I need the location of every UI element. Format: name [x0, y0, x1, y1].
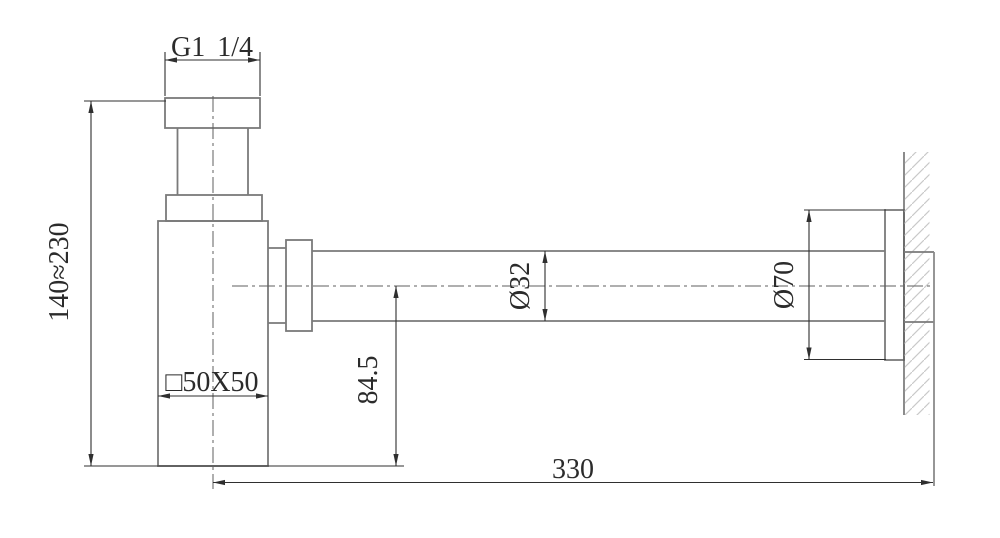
dim-height-range: 140≈230 — [44, 101, 166, 466]
arrowhead-up — [393, 286, 398, 298]
wall-flange — [885, 210, 904, 360]
wall-hatching — [905, 152, 930, 415]
centerlines — [213, 96, 930, 489]
arrowhead-right — [921, 480, 933, 485]
dim-thread-size: G1 1/4 — [165, 32, 260, 96]
arrowhead-up — [542, 251, 547, 263]
dim-label-thread-size: G1 1/4 — [171, 32, 253, 63]
dim-label-pipe-diameter: Ø32 — [505, 262, 536, 310]
dim-body-section: □50X50 — [158, 367, 268, 399]
dim-label-outlet-center-height: 84.5 — [353, 356, 384, 405]
arrowhead-left — [213, 480, 225, 485]
dim-flange-diameter: Ø70 — [769, 210, 886, 360]
bottle-trap-technical-drawing: G1 1/4 140≈230 □50X50 84.5 Ø32 Ø70 — [0, 0, 1000, 538]
dim-label-height-range: 140≈230 — [44, 222, 75, 321]
arrowhead-down — [542, 309, 547, 321]
drawing-canvas: G1 1/4 140≈230 □50X50 84.5 Ø32 Ø70 — [0, 0, 1000, 538]
trap-cap — [166, 195, 262, 221]
dim-wall-distance: 330 — [213, 454, 933, 485]
dim-label-body-section: □50X50 — [165, 367, 258, 398]
arrowhead-up — [88, 101, 93, 113]
dim-label-wall-distance: 330 — [552, 454, 594, 485]
arrowhead-down — [393, 454, 398, 466]
bottle-trap-fixture — [158, 98, 934, 486]
arrowhead-down — [88, 454, 93, 466]
dim-label-flange-diameter: Ø70 — [769, 261, 800, 309]
arrowhead-up — [806, 210, 811, 222]
arrowhead-down — [806, 348, 811, 360]
